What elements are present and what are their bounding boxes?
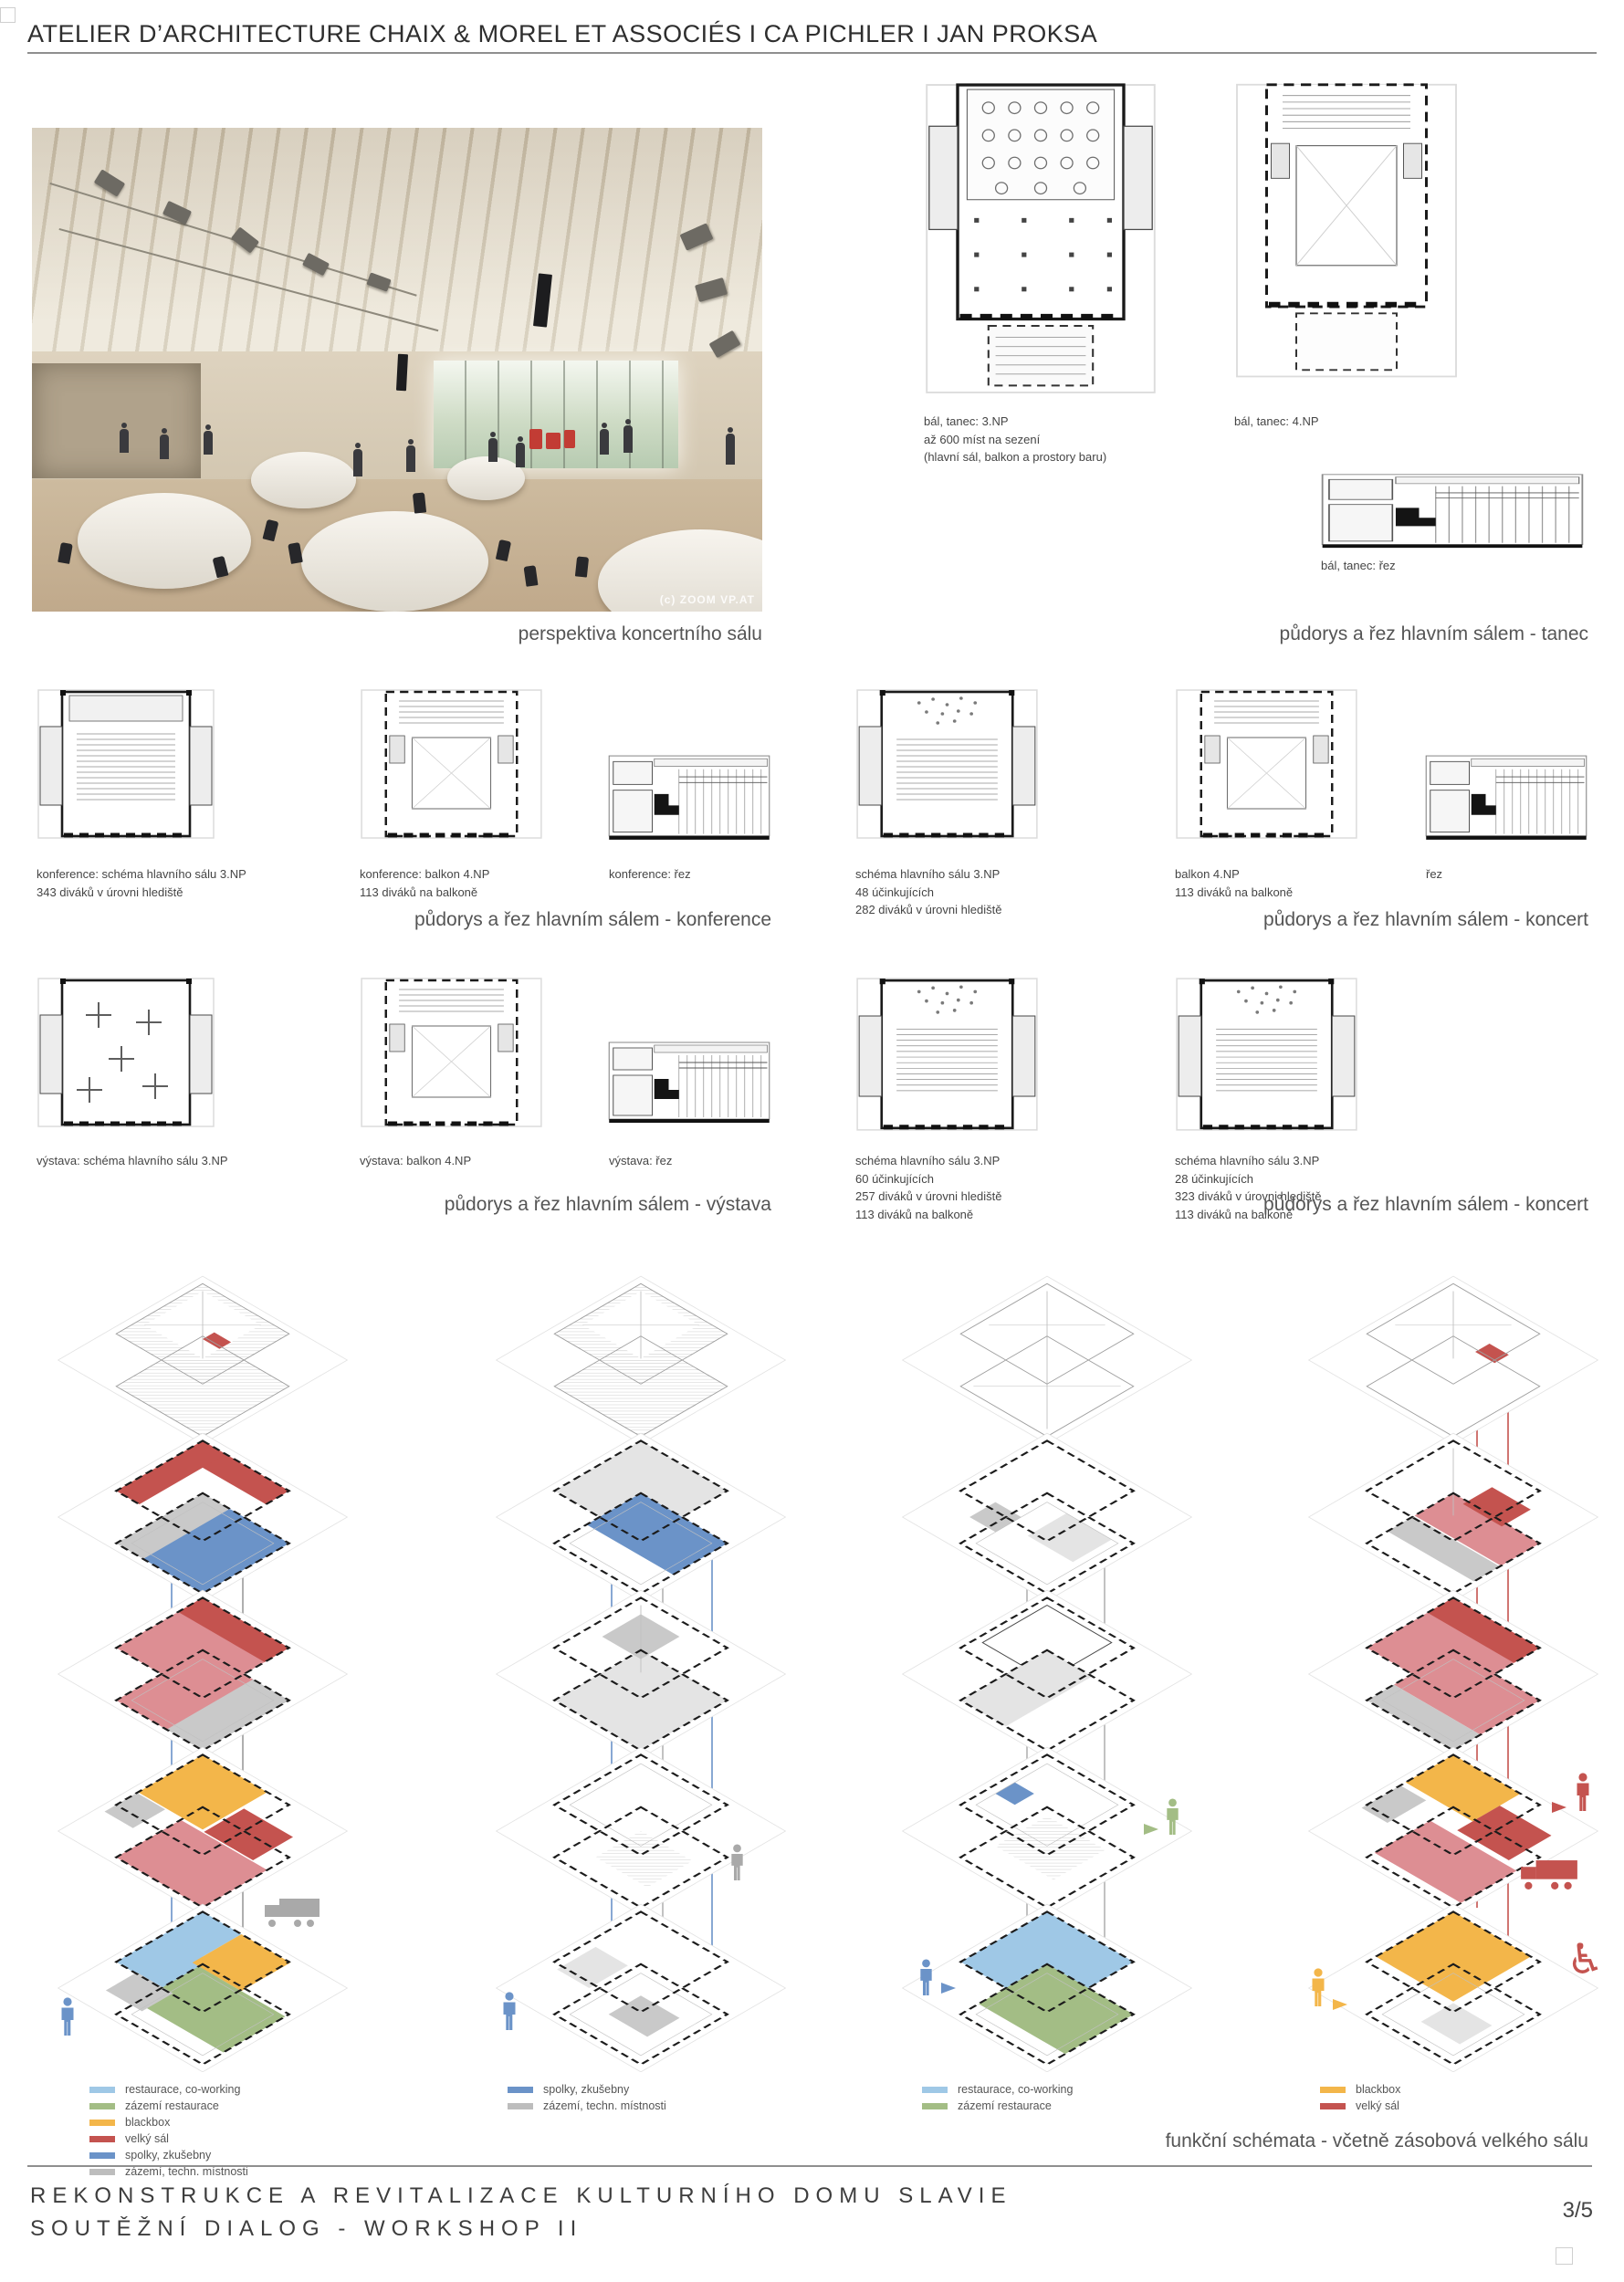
axon4-floor3 [1309,1590,1598,1758]
person-icon [1313,1968,1325,2006]
perspective-render: (c) ZOOM VP.AT [32,128,762,612]
caption-konference: půdorys a řez hlavním sálem - konference [224,909,771,931]
plan-koncert1-4np-drawing [1173,686,1360,843]
legend-item: blackbox [1320,2081,1400,2098]
wheelchair-icon: ♿ [1566,1934,1604,1984]
section-konference-drawing [607,754,771,842]
axon-scheme-3 [890,1269,1205,2072]
legend-label: zázemí restaurace [958,2099,1052,2112]
render-chair [575,556,589,577]
render-person [204,431,213,455]
plan-label-konference-rez: konference: řez [609,865,691,884]
axon2-floor2 [497,1433,786,1601]
plan-label-vystava-4np: výstava: balkon 4.NP [360,1152,471,1170]
crop-mark-top-left [0,7,16,23]
render-person [600,429,609,455]
render-person [516,443,525,467]
caption-tanec: půdorys a řez hlavním sálem - tanec [1041,623,1588,645]
plan-label-koncert2-a: schéma hlavního sálu 3.NP60 účinkujících… [855,1152,1001,1223]
legend-label: zázemí restaurace [125,2099,219,2112]
legend-swatch [508,2103,533,2109]
caption-koncert2: půdorys a řez hlavním sálem - koncert [1041,1194,1588,1216]
plan-konference-3np-drawing [35,686,217,843]
header-rule [27,52,1597,54]
caption-vystava: půdorys a řez hlavním sálem - výstava [224,1194,771,1216]
plan-label-koncert1-3np: schéma hlavního sálu 3.NP48 účinkujících… [855,865,1001,919]
render-table [447,456,525,500]
plan-vystava-4np-drawing [358,975,545,1132]
plan-label-vystava-rez: výstava: řez [609,1152,672,1170]
legend-label: velký sál [125,2132,169,2145]
legend-label: zázemí, techn. místnosti [543,2099,666,2112]
legend-swatch [89,2136,115,2142]
legend-label: blackbox [125,2116,170,2129]
legend-label: restaurace, co-working [958,2083,1073,2096]
render-person [120,429,129,453]
crop-mark-bottom-right [1556,2247,1573,2265]
axon3-floor3 [903,1590,1192,1758]
render-table [251,452,356,508]
plan-label-bal-4np: bál, tanec: 4.NP [1234,413,1319,431]
legend-swatch [89,2103,115,2109]
legend-swatch [89,2152,115,2159]
legend-label: blackbox [1356,2083,1400,2096]
axon1-floor5 [58,1904,348,2072]
legend-swatch [1320,2087,1346,2093]
legend-label: velký sál [1356,2099,1399,2112]
truck-icon [265,1899,320,1927]
plan-bal-3np-drawing [922,80,1159,402]
legend-label: spolky, zkušebny [543,2083,629,2096]
legend-item: spolky, zkušebny [508,2081,666,2098]
render-ceiling [32,128,762,356]
plan-konference-4np-drawing [358,686,545,843]
legend-item: zázemí restaurace [922,2098,1073,2114]
axon2-floor3 [497,1590,786,1758]
render-person [623,425,633,453]
legend-item: zázemí restaurace [89,2098,248,2114]
plan-bal-4np-drawing [1232,80,1461,385]
render-stage-drums [529,429,542,449]
plan-label-konference-3np: konference: schéma hlavního sálu 3.NP343… [37,865,246,901]
plan-koncert2-a-drawing [854,975,1041,1136]
caption-funkcni: funkční schémata - včetně zásobová velké… [1041,2130,1588,2152]
axon1-floor4 [58,1747,348,1915]
legend-item: spolky, zkušebny [89,2147,248,2163]
render-chair [413,492,426,513]
axon-scheme-1 [46,1269,361,2072]
page-title: ATELIER D’ARCHITECTURE CHAIX & MOREL ET … [27,20,1097,48]
footer-subtitle: SOUTĚŽNÍ DIALOG - WORKSHOP II [30,2216,582,2242]
axon4-floor4 [1309,1747,1598,1915]
footer-rule [27,2165,1592,2167]
axon4-roof [1309,1276,1598,1444]
render-table [301,511,488,612]
legend-swatch [1320,2103,1346,2109]
plan-label-bal-rez: bál, tanec: řez [1321,557,1396,575]
render-side-alcove [32,363,201,478]
render-window-band [434,361,678,468]
render-person [353,449,362,476]
legend-item: blackbox [89,2114,248,2130]
render-person [726,434,735,465]
render-person [160,434,169,459]
legend-item: velký sál [1320,2098,1400,2114]
axon3-roof [903,1276,1192,1444]
plan-label-koncert1-rez: řez [1426,865,1442,884]
axon1-roof [58,1276,348,1444]
render-person [406,445,415,472]
legend-scheme-4: blackbox velký sál [1320,2081,1400,2114]
legend-swatch [508,2087,533,2093]
plan-label-konference-4np: konference: balkon 4.NP113 diváků na bal… [360,865,489,901]
legend-swatch [922,2103,948,2109]
section-vystava-drawing [607,1041,771,1125]
presentation-board: ATELIER D’ARCHITECTURE CHAIX & MOREL ET … [0,0,1624,2282]
page-number: 3/5 [1461,2198,1593,2224]
legend-item: restaurace, co-working [89,2081,248,2098]
axon2-roof [497,1276,786,1444]
render-stage-drums [564,430,575,448]
legend-item: zázemí, techn. místnosti [508,2098,666,2114]
plan-koncert1-3np-drawing [854,686,1041,843]
legend-swatch [89,2087,115,2093]
legend-item: restaurace, co-working [922,2081,1073,2098]
plan-label-bal-3np: bál, tanec: 3.NPaž 600 míst na sezení(hl… [924,413,1106,466]
axon-scheme-4: ♿ [1296,1269,1611,2072]
plan-label-koncert1-4np: balkon 4.NP113 diváků na balkoně [1175,865,1293,901]
legend-scheme-2: spolky, zkušebny zázemí, techn. místnost… [508,2081,666,2114]
person-icon [62,1997,74,2036]
section-bal-drawing [1319,473,1586,550]
axon4-floor2 [1309,1433,1598,1601]
legend-swatch [89,2120,115,2126]
axon2-floor4 [497,1747,786,1915]
axon2-floor5 [497,1904,786,2072]
render-stage-drums [546,433,561,449]
caption-perspective: perspektiva koncertního sálu [215,623,762,645]
axon1-floor3 [58,1590,348,1758]
legend-label: restaurace, co-working [125,2083,240,2096]
legend-scheme-3: restaurace, co-working zázemí restaurace [922,2081,1073,2114]
axon1-floor2 [58,1433,348,1601]
axon-scheme-2 [484,1269,799,2072]
section-koncert1-drawing [1424,754,1588,842]
legend-swatch [89,2169,115,2175]
render-watermark: (c) ZOOM VP.AT [660,593,755,606]
person-icon [1577,1773,1589,1811]
plan-label-vystava-3np: výstava: schéma hlavního sálu 3.NP [37,1152,228,1170]
footer-project-title: REKONSTRUKCE A REVITALIZACE KULTURNÍHO D… [30,2183,1011,2209]
axon4-floor5 [1309,1904,1598,2072]
legend-label: spolky, zkušebny [125,2149,211,2162]
render-speaker [396,354,408,392]
plan-koncert2-b-drawing [1173,975,1360,1136]
legend-item: velký sál [89,2130,248,2147]
render-person [488,438,498,462]
plan-vystava-3np-drawing [35,975,217,1132]
caption-koncert1: půdorys a řez hlavním sálem - koncert [1041,909,1588,931]
legend-label: zázemí, techn. místnosti [125,2165,248,2178]
axon3-floor2 [903,1433,1192,1601]
legend-swatch [922,2087,948,2093]
